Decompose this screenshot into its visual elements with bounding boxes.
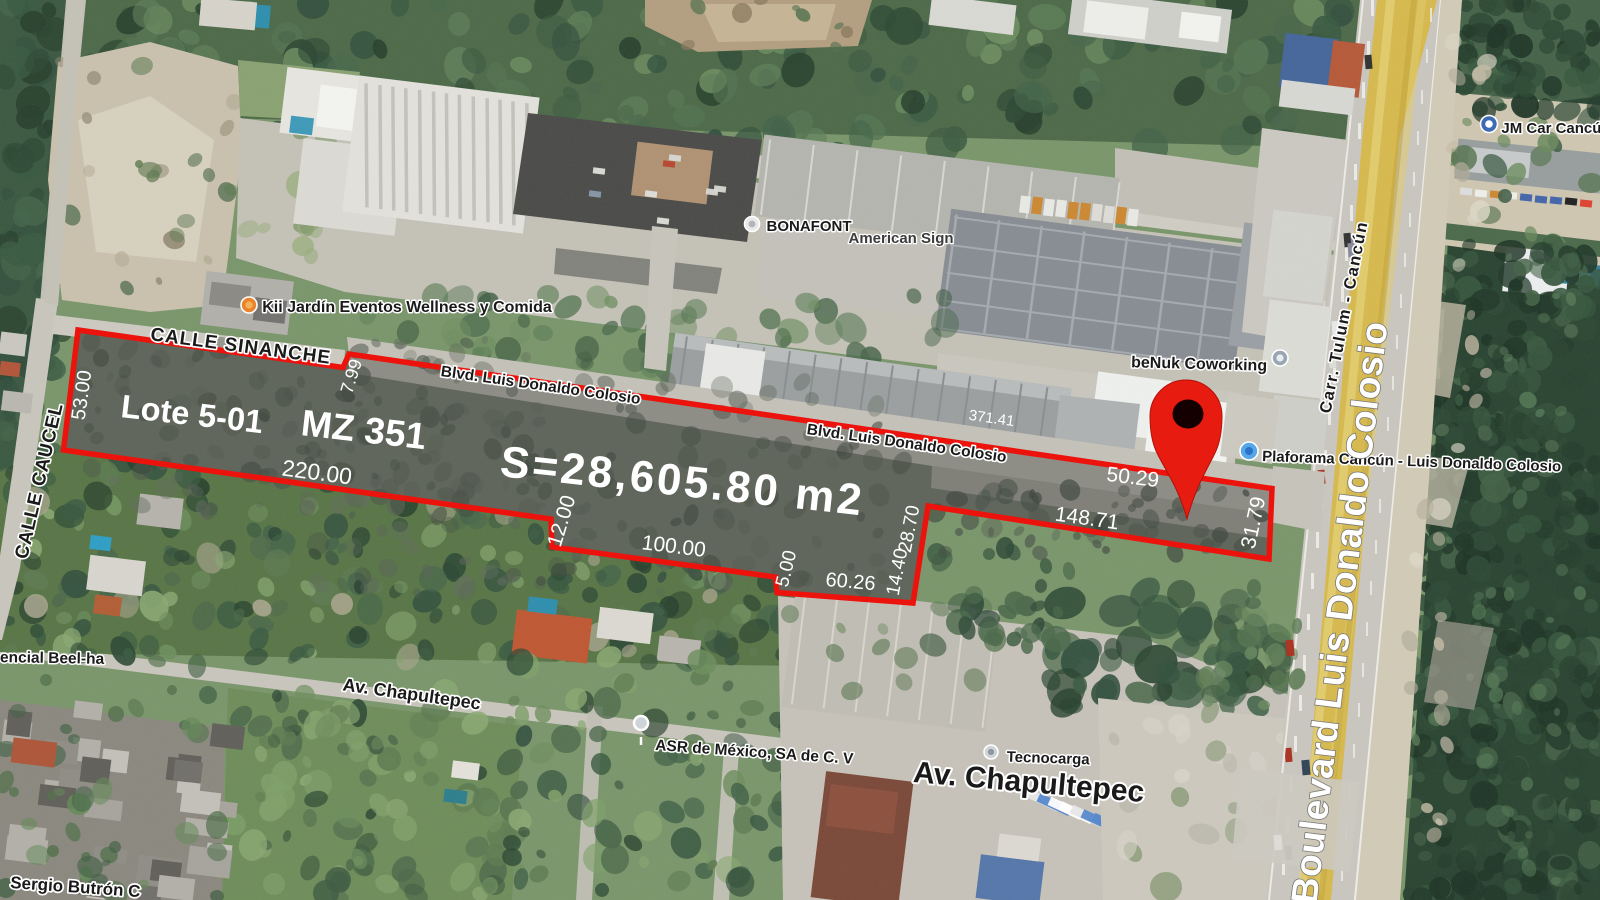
svg-text:encial Beel-ha: encial Beel-ha — [0, 649, 105, 668]
svg-text:BONAFONT: BONAFONT — [767, 218, 852, 235]
svg-text:Kii Jardín Eventos Wellness y: Kii Jardín Eventos Wellness y Comida — [262, 299, 552, 316]
svg-text:60.26: 60.26 — [825, 569, 877, 595]
svg-text:Tecnocarga: Tecnocarga — [1006, 749, 1090, 769]
svg-text:beNuk Coworking: beNuk Coworking — [1131, 354, 1267, 375]
svg-text:American Sign: American Sign — [848, 230, 953, 247]
svg-text:JM Car Cancún: JM Car Cancún — [1501, 120, 1600, 137]
